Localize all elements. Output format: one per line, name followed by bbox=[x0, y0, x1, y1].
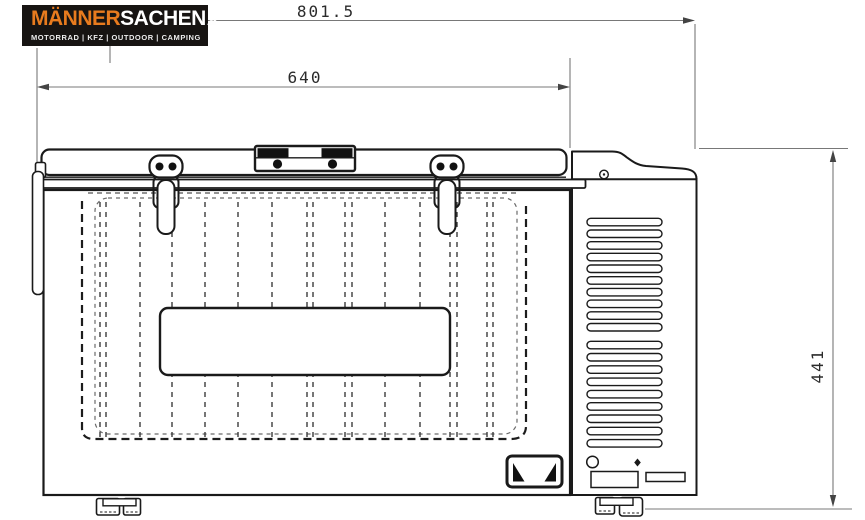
latch-rivet-icon bbox=[437, 163, 445, 171]
arrowhead-right-icon bbox=[683, 17, 695, 24]
lid-rim bbox=[36, 180, 586, 189]
handle-screw-icon bbox=[328, 159, 337, 168]
vent-slot-small bbox=[646, 473, 685, 482]
logo-brand-tld: .at bbox=[207, 17, 216, 27]
logo-brand-secondary: SACHEN bbox=[120, 7, 206, 30]
logo-tagline: MOTORRAD | KFZ | OUTDOOR | CAMPING bbox=[31, 33, 201, 42]
dimension-label-outer-width: 801.5 bbox=[297, 2, 355, 21]
vent-grille-lower bbox=[587, 341, 662, 447]
hinge-bracket bbox=[33, 172, 44, 295]
latch-head bbox=[431, 156, 464, 178]
foot-left bbox=[97, 499, 141, 516]
handle-block-right bbox=[322, 148, 353, 158]
technical-drawing-page: MÄNNERSACHEN.at MOTORRAD | KFZ | OUTDOOR… bbox=[0, 0, 865, 520]
shop-logo: MÄNNERSACHEN.at MOTORRAD | KFZ | OUTDOOR… bbox=[22, 5, 208, 46]
dimension-label-lid-width: 640 bbox=[288, 68, 323, 87]
screw-center-icon bbox=[603, 173, 605, 175]
arrowhead-left-icon bbox=[37, 84, 49, 90]
arrowhead-down-icon bbox=[830, 495, 836, 507]
front-recess-plate bbox=[160, 308, 450, 375]
latch-tongue bbox=[158, 180, 175, 234]
compressor-top-cap bbox=[572, 152, 697, 180]
latch-rivet-icon bbox=[450, 163, 458, 171]
freezer-front-elevation: 801.5 640 441 bbox=[0, 0, 865, 520]
latch-tongue bbox=[439, 180, 456, 234]
rating-plate bbox=[591, 472, 638, 488]
latch-rivet-icon bbox=[156, 163, 164, 171]
logo-brand: MÄNNERSACHEN.at bbox=[31, 8, 201, 30]
logo-brand-primary: MÄNNER bbox=[31, 7, 120, 30]
latch-head bbox=[150, 156, 183, 178]
compressor-section bbox=[572, 152, 697, 496]
foot-right bbox=[596, 498, 643, 517]
latch-rivet-icon bbox=[169, 163, 177, 171]
bottom-grip-recess bbox=[507, 456, 562, 487]
thermostat-knob bbox=[587, 456, 599, 468]
lid-handle bbox=[255, 146, 355, 171]
handle-block-left bbox=[258, 148, 289, 158]
arrowhead-up-icon bbox=[830, 150, 836, 162]
arrowhead-right-icon bbox=[558, 84, 570, 90]
dimension-label-height: 441 bbox=[808, 349, 827, 384]
handle-screw-icon bbox=[273, 159, 282, 168]
